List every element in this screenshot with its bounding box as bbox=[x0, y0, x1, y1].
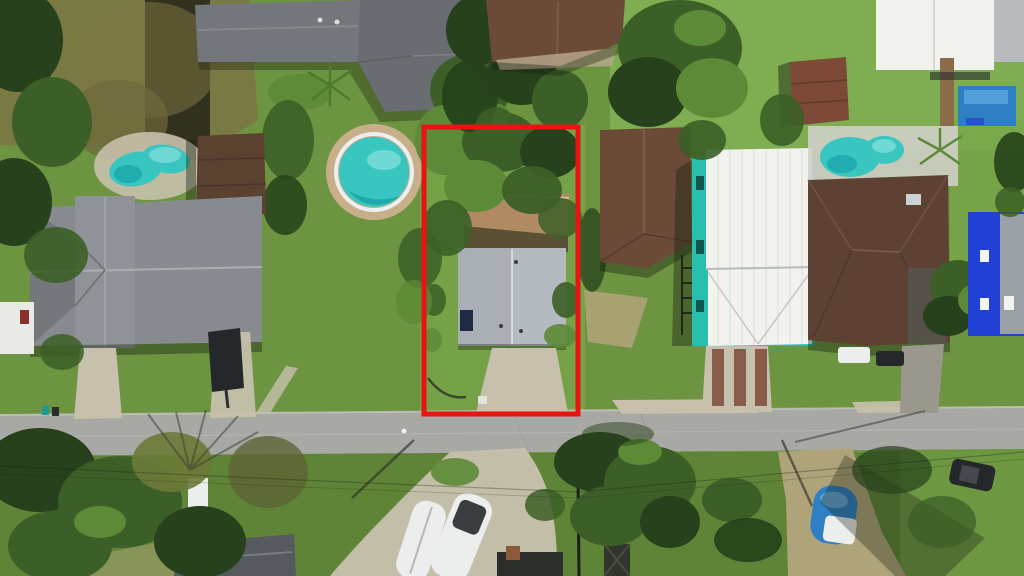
house-white-metal bbox=[672, 148, 814, 346]
mailbox bbox=[402, 429, 407, 434]
metal-roof-porch bbox=[708, 268, 812, 346]
roof-vent bbox=[335, 20, 340, 25]
canopy-blob bbox=[398, 228, 442, 288]
boat-hull bbox=[208, 328, 244, 392]
canopy-blob bbox=[228, 436, 308, 508]
pool-toy bbox=[966, 118, 984, 125]
pool-deep-end bbox=[827, 155, 857, 173]
paver-strip bbox=[712, 349, 724, 406]
canopy-blob bbox=[474, 107, 518, 157]
skylight bbox=[906, 194, 921, 205]
house-far-right bbox=[808, 175, 950, 356]
roof-vent bbox=[318, 18, 323, 23]
canopy-blob bbox=[908, 496, 976, 548]
pool-highlight bbox=[872, 139, 896, 153]
window bbox=[696, 240, 704, 254]
canopy-blob bbox=[678, 120, 726, 160]
canopy-blob bbox=[525, 489, 565, 521]
trailer-bar bbox=[226, 390, 228, 408]
striped-driveway bbox=[702, 346, 772, 412]
canopy-blob bbox=[263, 175, 307, 235]
metal-roof-upper bbox=[706, 148, 812, 270]
pool-highlight bbox=[964, 90, 1008, 104]
aerial-photo bbox=[0, 0, 1024, 576]
roof-vent bbox=[519, 329, 523, 333]
driveway-far-right bbox=[900, 344, 944, 413]
window bbox=[1004, 296, 1014, 310]
roof-vent bbox=[499, 324, 503, 328]
canopy-blob bbox=[544, 324, 576, 348]
canopy-blob bbox=[995, 187, 1024, 217]
canopy-blob bbox=[74, 506, 126, 538]
pool-water bbox=[339, 137, 409, 207]
canopy-blob bbox=[154, 506, 246, 576]
roof-vent bbox=[514, 260, 518, 264]
dark-car-parked bbox=[876, 351, 904, 366]
canopy-blob bbox=[676, 58, 748, 118]
aerial-scene bbox=[0, 0, 1024, 576]
trash-bin-dark bbox=[52, 407, 59, 416]
white-car bbox=[838, 347, 870, 363]
subject-driveway bbox=[476, 348, 568, 413]
canopy-blob bbox=[760, 94, 804, 146]
pool-highlight bbox=[367, 150, 401, 170]
canopy-blob bbox=[608, 57, 688, 127]
shed-roof bbox=[0, 302, 34, 354]
roof-left-half bbox=[458, 248, 512, 346]
crate-brown bbox=[506, 546, 520, 560]
window bbox=[696, 300, 704, 312]
white-shed-left bbox=[0, 302, 34, 354]
canopy-blob bbox=[640, 496, 700, 548]
gray-roof-section bbox=[1000, 214, 1024, 334]
canopy-blob bbox=[538, 198, 582, 238]
wood-deck-strip bbox=[940, 58, 954, 126]
shed-sign bbox=[20, 310, 29, 324]
utility-box bbox=[478, 396, 487, 404]
canopy-blob bbox=[431, 458, 479, 486]
trailer-frame bbox=[604, 544, 630, 576]
trash-bin-teal bbox=[42, 406, 49, 415]
paver-strip bbox=[755, 349, 767, 406]
canopy-blob bbox=[12, 77, 92, 167]
pool-highlight bbox=[149, 147, 181, 163]
window bbox=[696, 176, 704, 190]
canopy-blob bbox=[396, 280, 432, 324]
canopy-blob bbox=[24, 227, 88, 283]
canopy-blob bbox=[852, 446, 932, 494]
gray-panel bbox=[994, 0, 1024, 62]
lounge-chairs bbox=[930, 72, 990, 80]
house-top-center bbox=[486, 0, 625, 76]
window bbox=[980, 250, 989, 262]
canopy-blob bbox=[714, 518, 782, 562]
round-pool bbox=[326, 124, 422, 220]
canopy-blob bbox=[674, 10, 726, 46]
road-overhang-shade bbox=[582, 422, 654, 446]
pool-deep-end bbox=[114, 165, 142, 183]
window bbox=[980, 298, 989, 310]
canopy-blob bbox=[262, 100, 314, 180]
paver-strip bbox=[734, 349, 746, 406]
canopy-blob bbox=[532, 70, 588, 130]
canopy-blob bbox=[40, 334, 84, 370]
chimney bbox=[460, 310, 473, 331]
house-blue bbox=[968, 212, 1024, 336]
